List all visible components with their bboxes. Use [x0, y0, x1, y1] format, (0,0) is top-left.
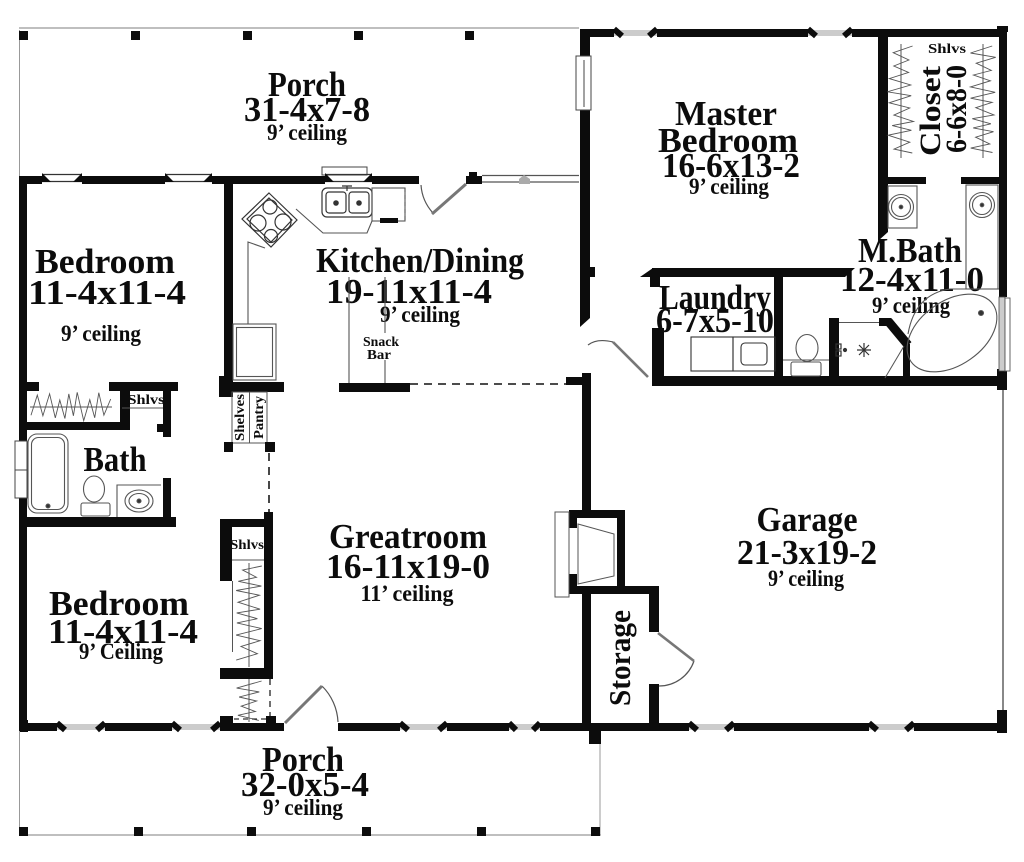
svg-text:Bar: Bar: [367, 348, 391, 363]
svg-text:9’ ceiling: 9’ ceiling: [380, 302, 460, 327]
svg-text:9’ ceiling: 9’ ceiling: [61, 321, 141, 346]
svg-text:11-4x11-4: 11-4x11-4: [28, 273, 186, 312]
svg-text:6-7x5-10: 6-7x5-10: [656, 301, 774, 340]
svg-text:9’ ceiling: 9’ ceiling: [263, 795, 343, 820]
svg-text:Shlvs: Shlvs: [230, 538, 265, 553]
svg-text:9’ ceiling: 9’ ceiling: [768, 566, 844, 591]
svg-text:6-6x8-0: 6-6x8-0: [940, 65, 973, 153]
svg-text:Shelves: Shelves: [233, 393, 248, 441]
svg-text:Pantry: Pantry: [252, 396, 267, 439]
svg-text:Shlvs: Shlvs: [928, 42, 967, 57]
svg-text:9’ ceiling: 9’ ceiling: [689, 174, 769, 199]
svg-text:11’ ceiling: 11’ ceiling: [361, 581, 454, 606]
svg-text:Shlvs: Shlvs: [128, 393, 166, 408]
svg-text:Bath: Bath: [84, 440, 147, 479]
svg-text:9’ ceiling: 9’ ceiling: [267, 120, 347, 145]
svg-text:Storage: Storage: [602, 610, 637, 706]
svg-text:9’ ceiling: 9’ ceiling: [872, 293, 950, 318]
svg-text:9’ Ceiling: 9’ Ceiling: [79, 639, 163, 664]
